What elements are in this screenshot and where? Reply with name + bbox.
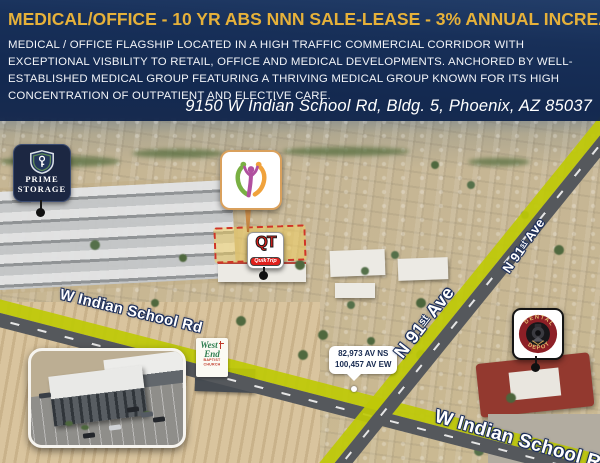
inset-building-photo	[28, 348, 186, 448]
location-pin-dot	[259, 271, 268, 280]
tree-line	[282, 147, 410, 156]
west-end-label-line2: End	[196, 350, 228, 359]
location-pin-dot	[36, 208, 45, 217]
building	[335, 283, 375, 298]
quiktrip-initials: QT	[248, 234, 283, 252]
badge-medical-group	[220, 150, 282, 210]
traffic-count-callout: 82,973 AV NS 100,457 AV EW	[329, 346, 397, 374]
shield-key-icon	[28, 149, 56, 175]
badge-prime-storage: PRIME STORAGE	[13, 144, 71, 202]
badge-west-end-church: West End BAPTIST CHURCH	[196, 338, 228, 377]
traffic-count-ns: 82,973 AV NS	[335, 349, 391, 360]
cross-icon	[219, 341, 224, 349]
building	[330, 249, 386, 277]
badge-quiktrip: QT QuikTrip	[247, 232, 284, 269]
flyer-root: PRIME STORAGE QT QuikTrip DENTAL DEPOT	[0, 0, 600, 463]
west-end-label-line4: CHURCH	[204, 362, 221, 366]
tree-line	[468, 158, 530, 166]
property-description: MEDICAL / OFFICE FLAGSHIP LOCATED IN A H…	[8, 37, 574, 105]
prime-storage-label-line2: STORAGE	[18, 185, 66, 195]
badge-dental-depot: DENTAL DEPOT	[512, 308, 564, 360]
quiktrip-name: QuikTrip	[250, 257, 281, 266]
header-band: MEDICAL/OFFICE - 10 YR ABS NNN SALE-LEAS…	[0, 0, 600, 121]
building	[398, 257, 449, 281]
people-figures-icon	[227, 156, 275, 204]
traffic-count-ew: 100,457 AV EW	[335, 360, 391, 371]
page-title: MEDICAL/OFFICE - 10 YR ABS NNN SALE-LEAS…	[8, 9, 600, 30]
tree-line	[132, 149, 224, 158]
property-address: 9150 W Indian School Rd, Bldg. 5, Phoeni…	[185, 97, 592, 116]
locomotive-badge-icon: DENTAL DEPOT	[517, 313, 559, 355]
inset-landscaping	[81, 425, 89, 430]
callout-anchor-dot	[351, 386, 357, 392]
inset-landscaping	[65, 421, 73, 426]
location-pin-dot	[531, 363, 540, 372]
